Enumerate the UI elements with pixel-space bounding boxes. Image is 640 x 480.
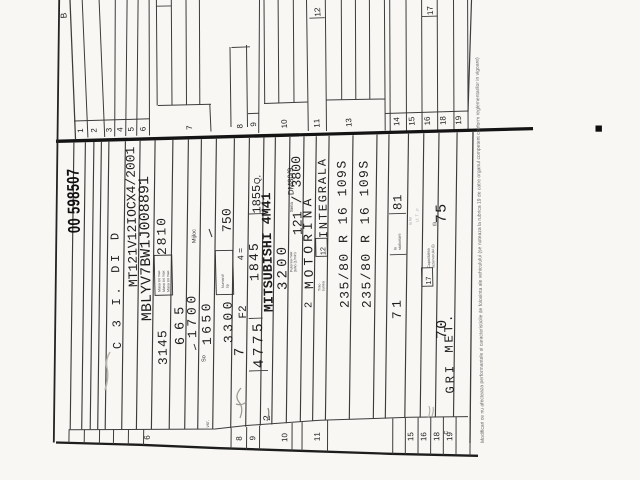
svg-text:18: 18 — [438, 115, 447, 125]
svg-text:3145: 3145 — [155, 329, 171, 365]
svg-text:1700: 1700 — [184, 292, 200, 338]
svg-text:MBLYV7BW1J008891: MBLYV7BW1J008891 — [137, 176, 156, 322]
svg-text:Masa tot max: Masa tot max — [166, 270, 170, 292]
svg-text:In: In — [393, 247, 397, 250]
svg-text:Lf. T. .p: Lf. T. .p — [414, 208, 419, 222]
svg-text:So: So — [201, 355, 207, 362]
svg-text:75: 75 — [433, 202, 450, 223]
svg-text:13: 13 — [344, 117, 353, 127]
svg-text:16: 16 — [423, 116, 432, 126]
svg-text:Q,: Q, — [252, 175, 262, 184]
svg-text:F2: F2 — [238, 305, 250, 318]
svg-text:stationare: stationare — [398, 233, 402, 250]
svg-text:(l): (l) — [432, 221, 437, 226]
svg-text:4775: 4775 — [251, 320, 268, 368]
svg-text:18: 18 — [432, 432, 441, 441]
svg-text:GRI MET.: GRI MET. — [442, 312, 458, 394]
svg-text:C 3 I. DI D: C 3 I. DI D — [108, 229, 125, 349]
svg-text:Mijloc: Mijloc — [191, 229, 197, 243]
svg-text:00 598507: 00 598507 — [64, 168, 85, 233]
svg-text:1650: 1650 — [199, 300, 215, 345]
svg-text:15: 15 — [407, 116, 416, 126]
svg-text:2810: 2810 — [154, 216, 170, 255]
svg-text:81: 81 — [391, 194, 405, 210]
svg-text:10: 10 — [280, 433, 289, 442]
svg-text:tip: tip — [225, 284, 229, 288]
svg-text:vsr.: vsr. — [205, 420, 210, 427]
svg-text:15: 15 — [406, 432, 415, 441]
svg-text:2: 2 — [303, 302, 315, 309]
svg-text:11: 11 — [313, 432, 322, 441]
svg-text:Numarul: Numarul — [221, 274, 225, 288]
svg-text:MOTORINA: MOTORINA — [300, 195, 317, 290]
svg-text:3300: 3300 — [220, 298, 236, 343]
svg-text:8: 8 — [235, 436, 244, 441]
svg-text:10: 10 — [280, 119, 289, 129]
svg-text:12: 12 — [313, 7, 322, 17]
svg-text:17: 17 — [424, 276, 433, 284]
svg-text:c: c — [443, 430, 450, 434]
svg-text:rezervorului (l): rezervorului (l) — [431, 244, 436, 268]
svg-text:750: 750 — [219, 208, 235, 232]
svg-text:12: 12 — [318, 247, 327, 255]
svg-text:4 =: 4 = — [235, 248, 245, 260]
svg-text:7: 7 — [232, 347, 248, 356]
svg-text:71: 71 — [389, 296, 405, 319]
svg-text:(kW) (1/min): (kW) (1/min) — [293, 252, 297, 272]
svg-text:6: 6 — [143, 435, 152, 440]
svg-text:11: 11 — [312, 118, 321, 128]
svg-text:17: 17 — [426, 5, 435, 15]
svg-text:14: 14 — [392, 116, 401, 126]
svg-text:la tur: la tur — [408, 216, 412, 225]
svg-text:9: 9 — [248, 435, 257, 440]
svg-text:tiunea: tiunea — [321, 281, 325, 291]
svg-text:INTEGRALA: INTEGRALA — [315, 157, 331, 238]
svg-text:19: 19 — [454, 115, 463, 125]
svg-text:16: 16 — [419, 432, 428, 441]
